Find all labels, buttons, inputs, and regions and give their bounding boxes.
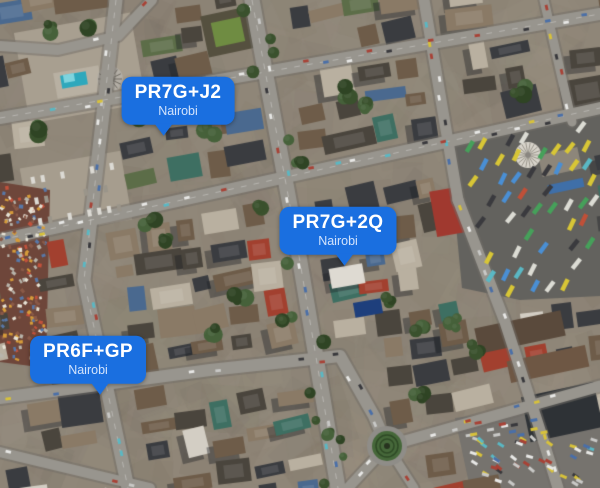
plus-code-marker[interactable]: PR7G+2Q Nairobi [280, 207, 397, 266]
marker-bubble: PR7G+J2 Nairobi [122, 77, 235, 125]
plus-code-marker[interactable]: PR7G+J2 Nairobi [122, 77, 235, 136]
marker-tail [336, 254, 354, 266]
marker-city-text: Nairobi [43, 363, 133, 377]
marker-city-text: Nairobi [293, 234, 384, 248]
plus-code-text: PR7G+2Q [293, 212, 384, 234]
map-viewport[interactable]: PR7G+J2 Nairobi PR7G+2Q Nairobi PR6F+GP … [0, 0, 600, 488]
marker-bubble: PR7G+2Q Nairobi [280, 207, 397, 255]
plus-code-text: PR7G+J2 [135, 82, 222, 104]
marker-tail [91, 383, 109, 395]
marker-tail [155, 124, 173, 136]
marker-city-text: Nairobi [135, 104, 222, 118]
marker-bubble: PR6F+GP Nairobi [30, 336, 146, 384]
plus-code-marker[interactable]: PR6F+GP Nairobi [30, 336, 146, 395]
plus-code-text: PR6F+GP [43, 341, 133, 363]
